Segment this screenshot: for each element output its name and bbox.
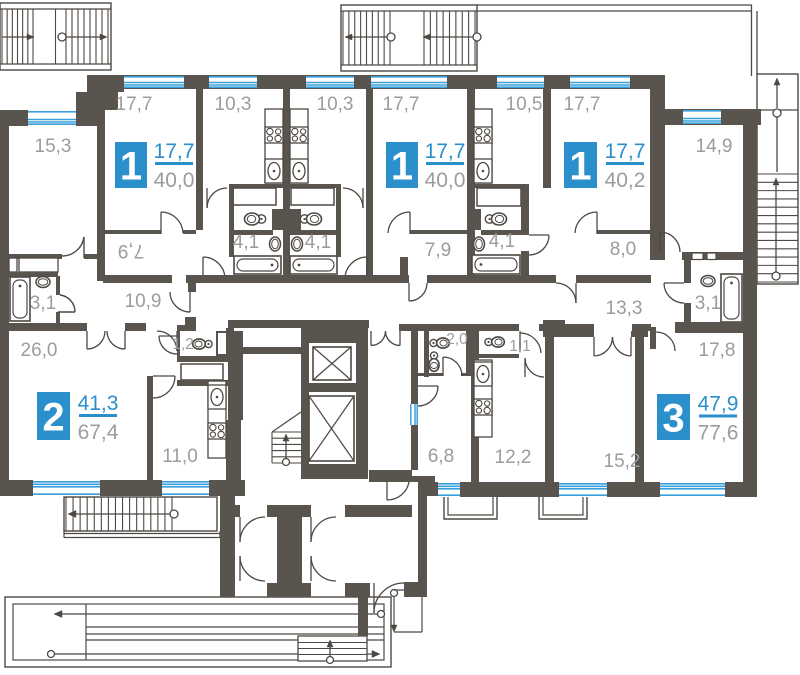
svg-text:1: 1 (569, 145, 591, 189)
svg-text:17,8: 17,8 (699, 340, 736, 361)
svg-text:1,2: 1,2 (172, 336, 194, 353)
svg-text:77,6: 77,6 (698, 422, 739, 445)
svg-text:7,9: 7,9 (118, 240, 144, 261)
svg-text:47,9: 47,9 (698, 393, 739, 416)
svg-text:17,7: 17,7 (605, 140, 646, 163)
svg-text:10,9: 10,9 (125, 291, 162, 312)
svg-text:40,0: 40,0 (154, 169, 195, 192)
svg-text:8,0: 8,0 (610, 239, 636, 260)
svg-text:15,2: 15,2 (604, 451, 641, 472)
svg-text:4,1: 4,1 (233, 232, 259, 253)
svg-text:11,0: 11,0 (162, 446, 198, 467)
svg-text:1: 1 (120, 145, 142, 189)
svg-text:2,0: 2,0 (446, 331, 468, 348)
svg-text:15,3: 15,3 (35, 136, 72, 157)
svg-text:10,3: 10,3 (317, 94, 354, 115)
svg-text:7,9: 7,9 (425, 240, 451, 261)
svg-text:1: 1 (391, 145, 413, 189)
svg-text:1,1: 1,1 (509, 338, 531, 355)
svg-text:14,9: 14,9 (696, 136, 733, 157)
svg-text:41,3: 41,3 (78, 392, 119, 415)
svg-text:4,1: 4,1 (305, 232, 331, 253)
svg-text:12,2: 12,2 (495, 447, 532, 468)
svg-text:17,7: 17,7 (383, 94, 420, 115)
svg-text:3,1: 3,1 (695, 293, 721, 314)
svg-text:6,8: 6,8 (428, 446, 454, 467)
svg-text:26,0: 26,0 (21, 340, 58, 361)
svg-text:3: 3 (662, 397, 684, 441)
svg-text:10,5: 10,5 (506, 94, 543, 115)
svg-text:2: 2 (42, 396, 64, 440)
svg-text:13,3: 13,3 (606, 298, 643, 319)
svg-text:40,2: 40,2 (605, 169, 646, 192)
svg-text:17,7: 17,7 (564, 94, 601, 115)
svg-text:40,0: 40,0 (425, 169, 466, 192)
svg-text:17,7: 17,7 (425, 140, 466, 163)
svg-text:17,7: 17,7 (116, 94, 153, 115)
svg-text:4,1: 4,1 (489, 231, 515, 252)
svg-text:3,1: 3,1 (30, 293, 56, 314)
svg-text:10,3: 10,3 (215, 94, 252, 115)
svg-text:67,4: 67,4 (78, 421, 119, 444)
svg-text:17,7: 17,7 (154, 140, 195, 163)
